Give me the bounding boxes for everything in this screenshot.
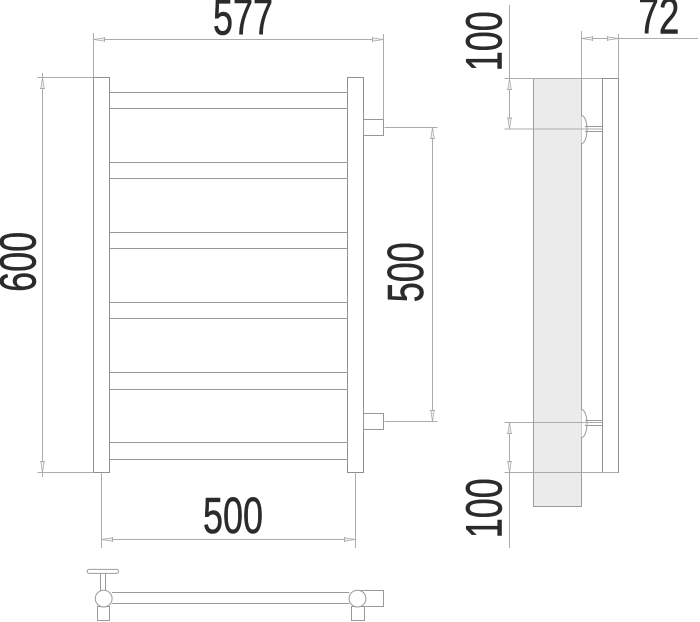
svg-text:500: 500: [203, 487, 263, 544]
svg-text:600: 600: [0, 232, 47, 292]
svg-text:500: 500: [377, 242, 434, 302]
svg-text:100: 100: [456, 11, 513, 71]
svg-text:72: 72: [638, 0, 679, 45]
svg-text:100: 100: [456, 478, 513, 538]
svg-text:577: 577: [213, 0, 273, 46]
